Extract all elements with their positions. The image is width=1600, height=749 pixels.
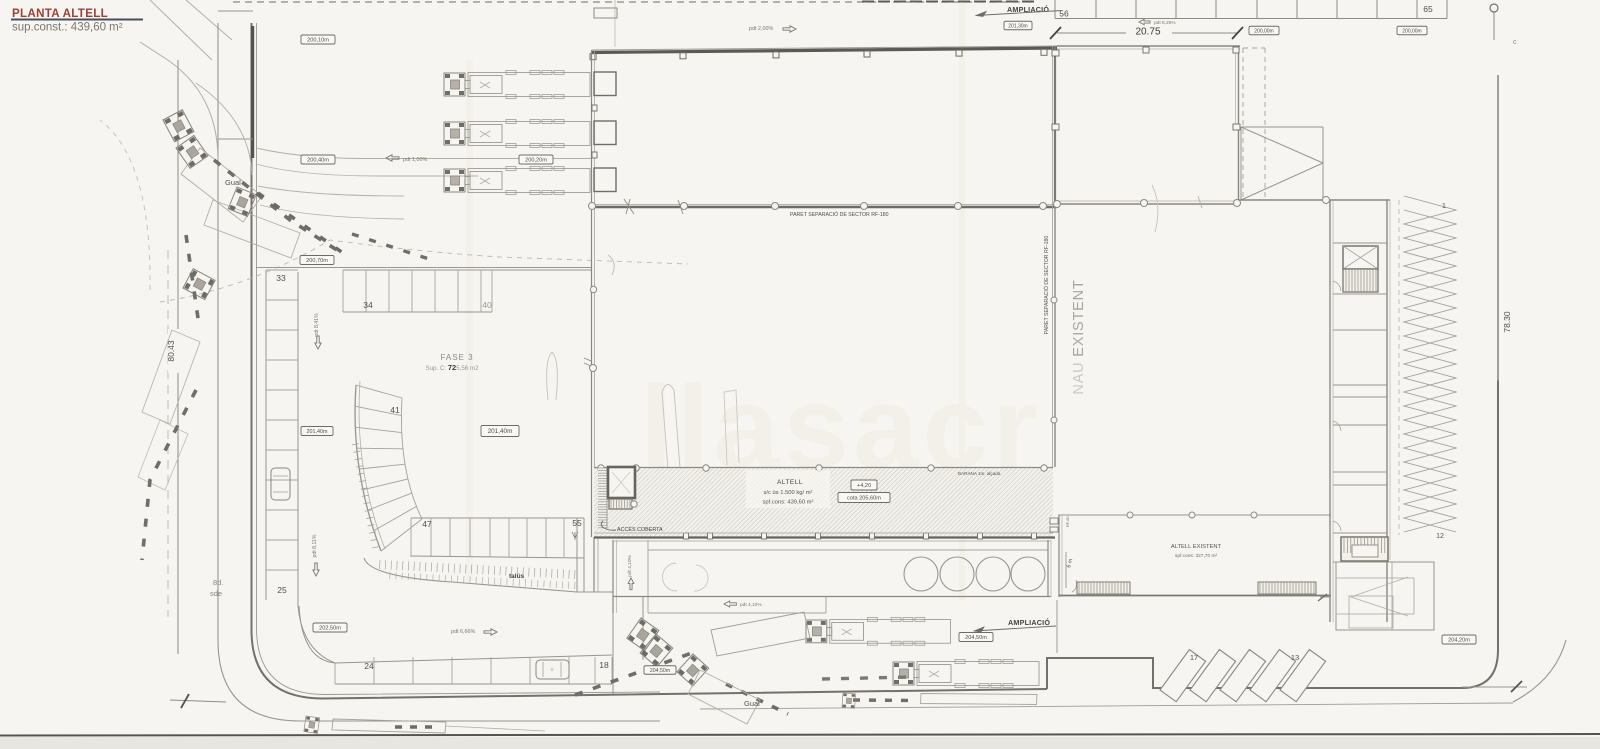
svg-text:talús: talús bbox=[509, 573, 525, 580]
svg-text:sde: sde bbox=[210, 589, 222, 598]
svg-text:13: 13 bbox=[1291, 653, 1299, 662]
svg-text:BARANA 1m. alçada: BARANA 1m. alçada bbox=[958, 471, 1001, 476]
svg-text:ALTELL: ALTELL bbox=[777, 479, 803, 486]
svg-text:8d.: 8d. bbox=[213, 578, 223, 587]
svg-text:201,40m: 201,40m bbox=[307, 429, 328, 435]
svg-text:PLANTA ALTELL: PLANTA ALTELL bbox=[12, 7, 108, 20]
svg-text:NAU EXISTENT: NAU EXISTENT bbox=[1071, 279, 1087, 394]
svg-text:Sup. C: 725,56 m2: Sup. C: 725,56 m2 bbox=[425, 363, 479, 372]
svg-text:201,40m: 201,40m bbox=[488, 428, 513, 435]
svg-text:24: 24 bbox=[364, 661, 374, 671]
svg-text:×: × bbox=[550, 667, 554, 674]
svg-text:201,30m: 201,30m bbox=[1008, 24, 1027, 30]
svg-text:RF-60: RF-60 bbox=[1066, 516, 1070, 527]
svg-text:33: 33 bbox=[276, 273, 286, 283]
svg-text:pdt 8,41%: pdt 8,41% bbox=[314, 313, 320, 337]
svg-text:pdt 6,66%: pdt 6,66% bbox=[451, 629, 475, 635]
svg-text:PARET SEPARACIÓ DE SECTOR RF-1: PARET SEPARACIÓ DE SECTOR RF-180 bbox=[790, 211, 889, 218]
svg-text:s/c ús 1.500 kg/ m²: s/c ús 1.500 kg/ m² bbox=[764, 490, 813, 496]
svg-text:12: 12 bbox=[1436, 533, 1444, 540]
svg-text:ALTELL EXISTENT: ALTELL EXISTENT bbox=[1171, 544, 1222, 550]
svg-text:20.75: 20.75 bbox=[1135, 27, 1160, 38]
svg-text:+4,20: +4,20 bbox=[857, 483, 871, 489]
svg-text:AMPLIACIÓ: AMPLIACIÓ bbox=[1008, 618, 1050, 627]
svg-text:202,50m: 202,50m bbox=[319, 626, 341, 632]
svg-text:200,10m: 200,10m bbox=[307, 38, 329, 44]
svg-text:ACCÉS COBERTA: ACCÉS COBERTA bbox=[617, 526, 663, 533]
svg-text:PARET SEPARACIÓ DE SECTOR RF-1: PARET SEPARACIÓ DE SECTOR RF-180 bbox=[1043, 236, 1050, 335]
svg-text:56: 56 bbox=[1059, 9, 1069, 19]
svg-text:Gual: Gual bbox=[744, 699, 760, 708]
svg-text:200,40m: 200,40m bbox=[307, 158, 329, 164]
svg-text:47: 47 bbox=[422, 519, 432, 529]
svg-text:204,50m: 204,50m bbox=[965, 635, 987, 641]
svg-text:pdt 1,00%: pdt 1,00% bbox=[403, 157, 427, 163]
svg-text:pdt 4,10%: pdt 4,10% bbox=[627, 554, 633, 576]
svg-text:cota 205,60m: cota 205,60m bbox=[847, 496, 881, 502]
svg-text:18: 18 bbox=[599, 660, 609, 670]
svg-text:204,50m: 204,50m bbox=[650, 668, 670, 674]
svg-text:200,20m: 200,20m bbox=[525, 158, 547, 164]
svg-text:204,20m: 204,20m bbox=[1448, 638, 1470, 644]
svg-text:17: 17 bbox=[1190, 653, 1198, 662]
svg-text:c: c bbox=[1513, 39, 1517, 46]
svg-text:200,00m: 200,00m bbox=[1402, 29, 1421, 35]
svg-text:40: 40 bbox=[482, 300, 492, 310]
svg-text:spf.cons: 439,60 m²: spf.cons: 439,60 m² bbox=[763, 500, 814, 506]
svg-text:41: 41 bbox=[390, 405, 400, 415]
svg-text:pdt 4,10%: pdt 4,10% bbox=[740, 602, 762, 608]
svg-text:sup.const.: 439,60 m²: sup.const.: 439,60 m² bbox=[12, 22, 123, 34]
svg-text:200,70m: 200,70m bbox=[306, 258, 328, 264]
svg-text:34: 34 bbox=[363, 300, 373, 310]
svg-text:1: 1 bbox=[1442, 203, 1446, 210]
svg-text:Gual: Gual bbox=[225, 178, 241, 187]
svg-text:65: 65 bbox=[1423, 4, 1433, 14]
svg-text:78.30: 78.30 bbox=[1502, 311, 1512, 333]
svg-text:spf.cons: 327,70 m²: spf.cons: 327,70 m² bbox=[1175, 553, 1218, 559]
svg-text:pdt 2,00%: pdt 2,00% bbox=[749, 26, 773, 32]
svg-text:pdt 8,11%: pdt 8,11% bbox=[312, 534, 318, 557]
svg-text:200,00m: 200,00m bbox=[1254, 29, 1273, 35]
svg-text:pdt 6,25%: pdt 6,25% bbox=[1154, 20, 1176, 26]
svg-text:FASE 3: FASE 3 bbox=[440, 353, 473, 362]
svg-text:25: 25 bbox=[277, 585, 287, 595]
